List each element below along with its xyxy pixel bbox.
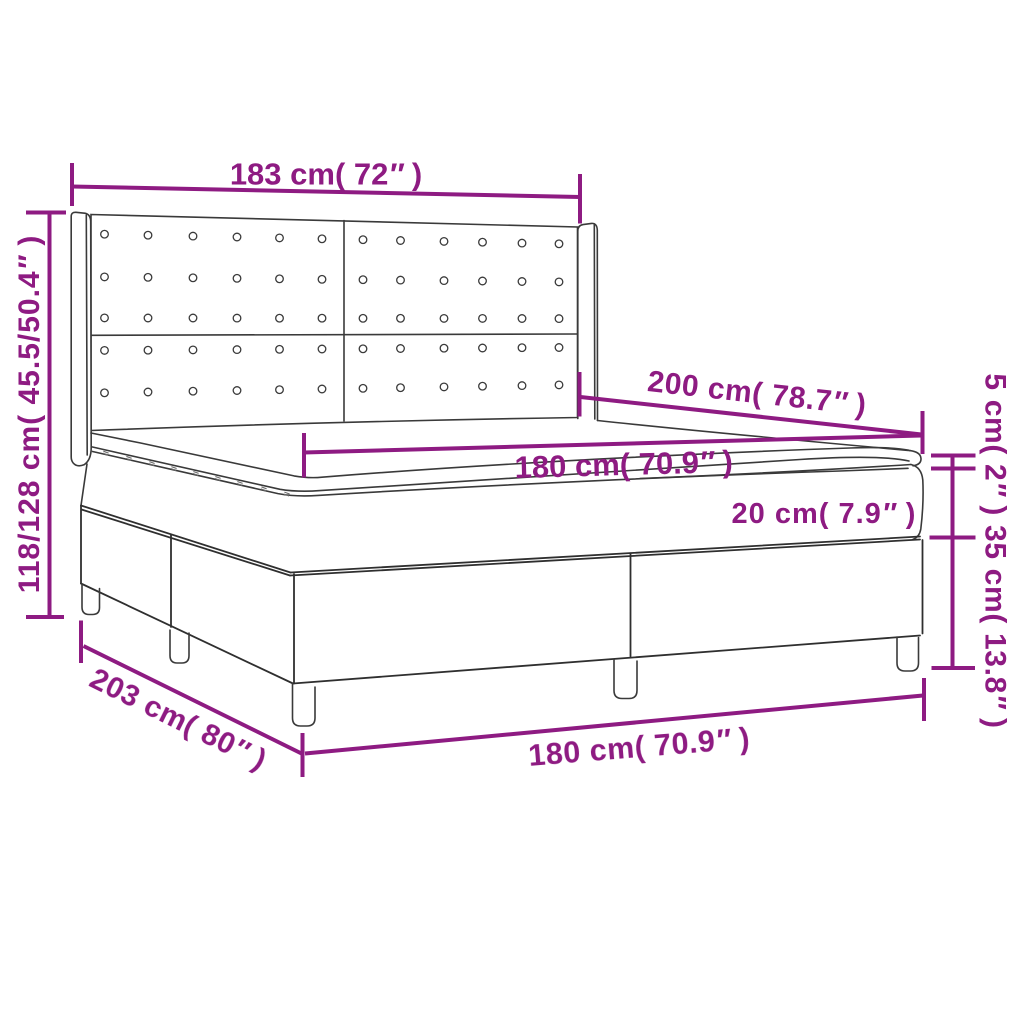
svg-text:183 cm( 72″ ): 183 cm( 72″ ) — [230, 157, 422, 192]
svg-text:20 cm( 7.9″ ): 20 cm( 7.9″ ) — [732, 498, 917, 530]
svg-text:180 cm( 70.9″ ): 180 cm( 70.9″ ) — [514, 444, 733, 485]
svg-text:118/128 cm( 45.5/50.4″ ): 118/128 cm( 45.5/50.4″ ) — [13, 235, 46, 594]
svg-text:5 cm( 2″ ) 35 cm( 13.8″ ): 5 cm( 2″ ) 35 cm( 13.8″ ) — [979, 373, 1012, 728]
